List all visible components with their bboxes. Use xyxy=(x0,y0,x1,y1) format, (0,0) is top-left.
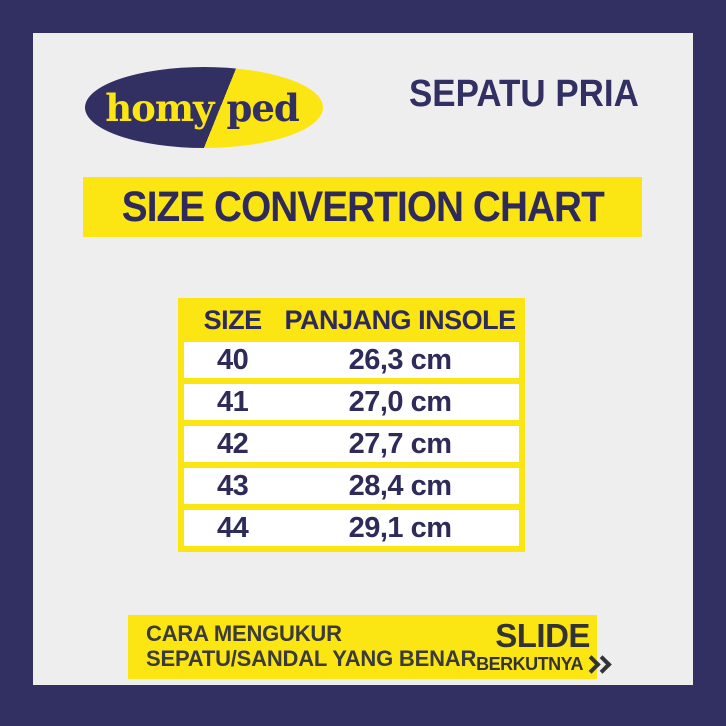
size-value: 41 xyxy=(184,386,281,419)
table-row: 42 27,7 cm xyxy=(184,426,519,462)
size-value: 43 xyxy=(184,470,281,503)
insole-value: 26,3 cm xyxy=(281,344,519,377)
page-title: SIZE CONVERTION CHART xyxy=(121,183,603,232)
homyped-logo: homy ped xyxy=(85,67,323,148)
size-value: 40 xyxy=(184,344,281,377)
table-row: 44 29,1 cm xyxy=(184,510,519,546)
logo-word-ped: ped xyxy=(226,86,298,130)
size-conversion-table: SIZE PANJANG INSOLE 40 26,3 cm 41 27,0 c… xyxy=(178,298,525,552)
insole-value: 28,4 cm xyxy=(281,470,519,503)
column-header-size: SIZE xyxy=(184,305,281,336)
measure-note-line1: CARA MENGUKUR xyxy=(146,622,476,647)
title-banner: SIZE CONVERTION CHART xyxy=(83,177,642,237)
table-row: 40 26,3 cm xyxy=(184,342,519,378)
chevron-double-right-icon xyxy=(587,658,609,671)
poster-canvas: homy ped SEPATU PRIA SIZE CONVERTION CHA… xyxy=(33,33,693,685)
insole-value: 27,7 cm xyxy=(281,428,519,461)
table-row: 43 28,4 cm xyxy=(184,468,519,504)
size-value: 44 xyxy=(184,512,281,545)
measure-note-line2: SEPATU/SANDAL YANG BENAR xyxy=(146,647,476,672)
chevron-right-icon xyxy=(593,655,611,673)
column-header-insole: PANJANG INSOLE xyxy=(281,305,519,336)
footer-banner: CARA MENGUKUR SEPATU/SANDAL YANG BENAR S… xyxy=(128,615,597,679)
next-row: BERKUTNYA xyxy=(476,654,609,675)
logo-word-homy: homy xyxy=(105,86,213,130)
category-heading: SEPATU PRIA xyxy=(409,73,639,116)
table-header-row: SIZE PANJANG INSOLE xyxy=(184,298,519,342)
measure-note: CARA MENGUKUR SEPATU/SANDAL YANG BENAR xyxy=(146,622,476,671)
insole-value: 29,1 cm xyxy=(281,512,519,545)
insole-value: 27,0 cm xyxy=(281,386,519,419)
slide-label: SLIDE xyxy=(495,619,590,652)
next-label: BERKUTNYA xyxy=(476,654,583,675)
poster-frame: homy ped SEPATU PRIA SIZE CONVERTION CHA… xyxy=(0,0,726,726)
size-value: 42 xyxy=(184,428,281,461)
table-row: 41 27,0 cm xyxy=(184,384,519,420)
next-slide-control[interactable]: SLIDE BERKUTNYA xyxy=(476,619,609,675)
